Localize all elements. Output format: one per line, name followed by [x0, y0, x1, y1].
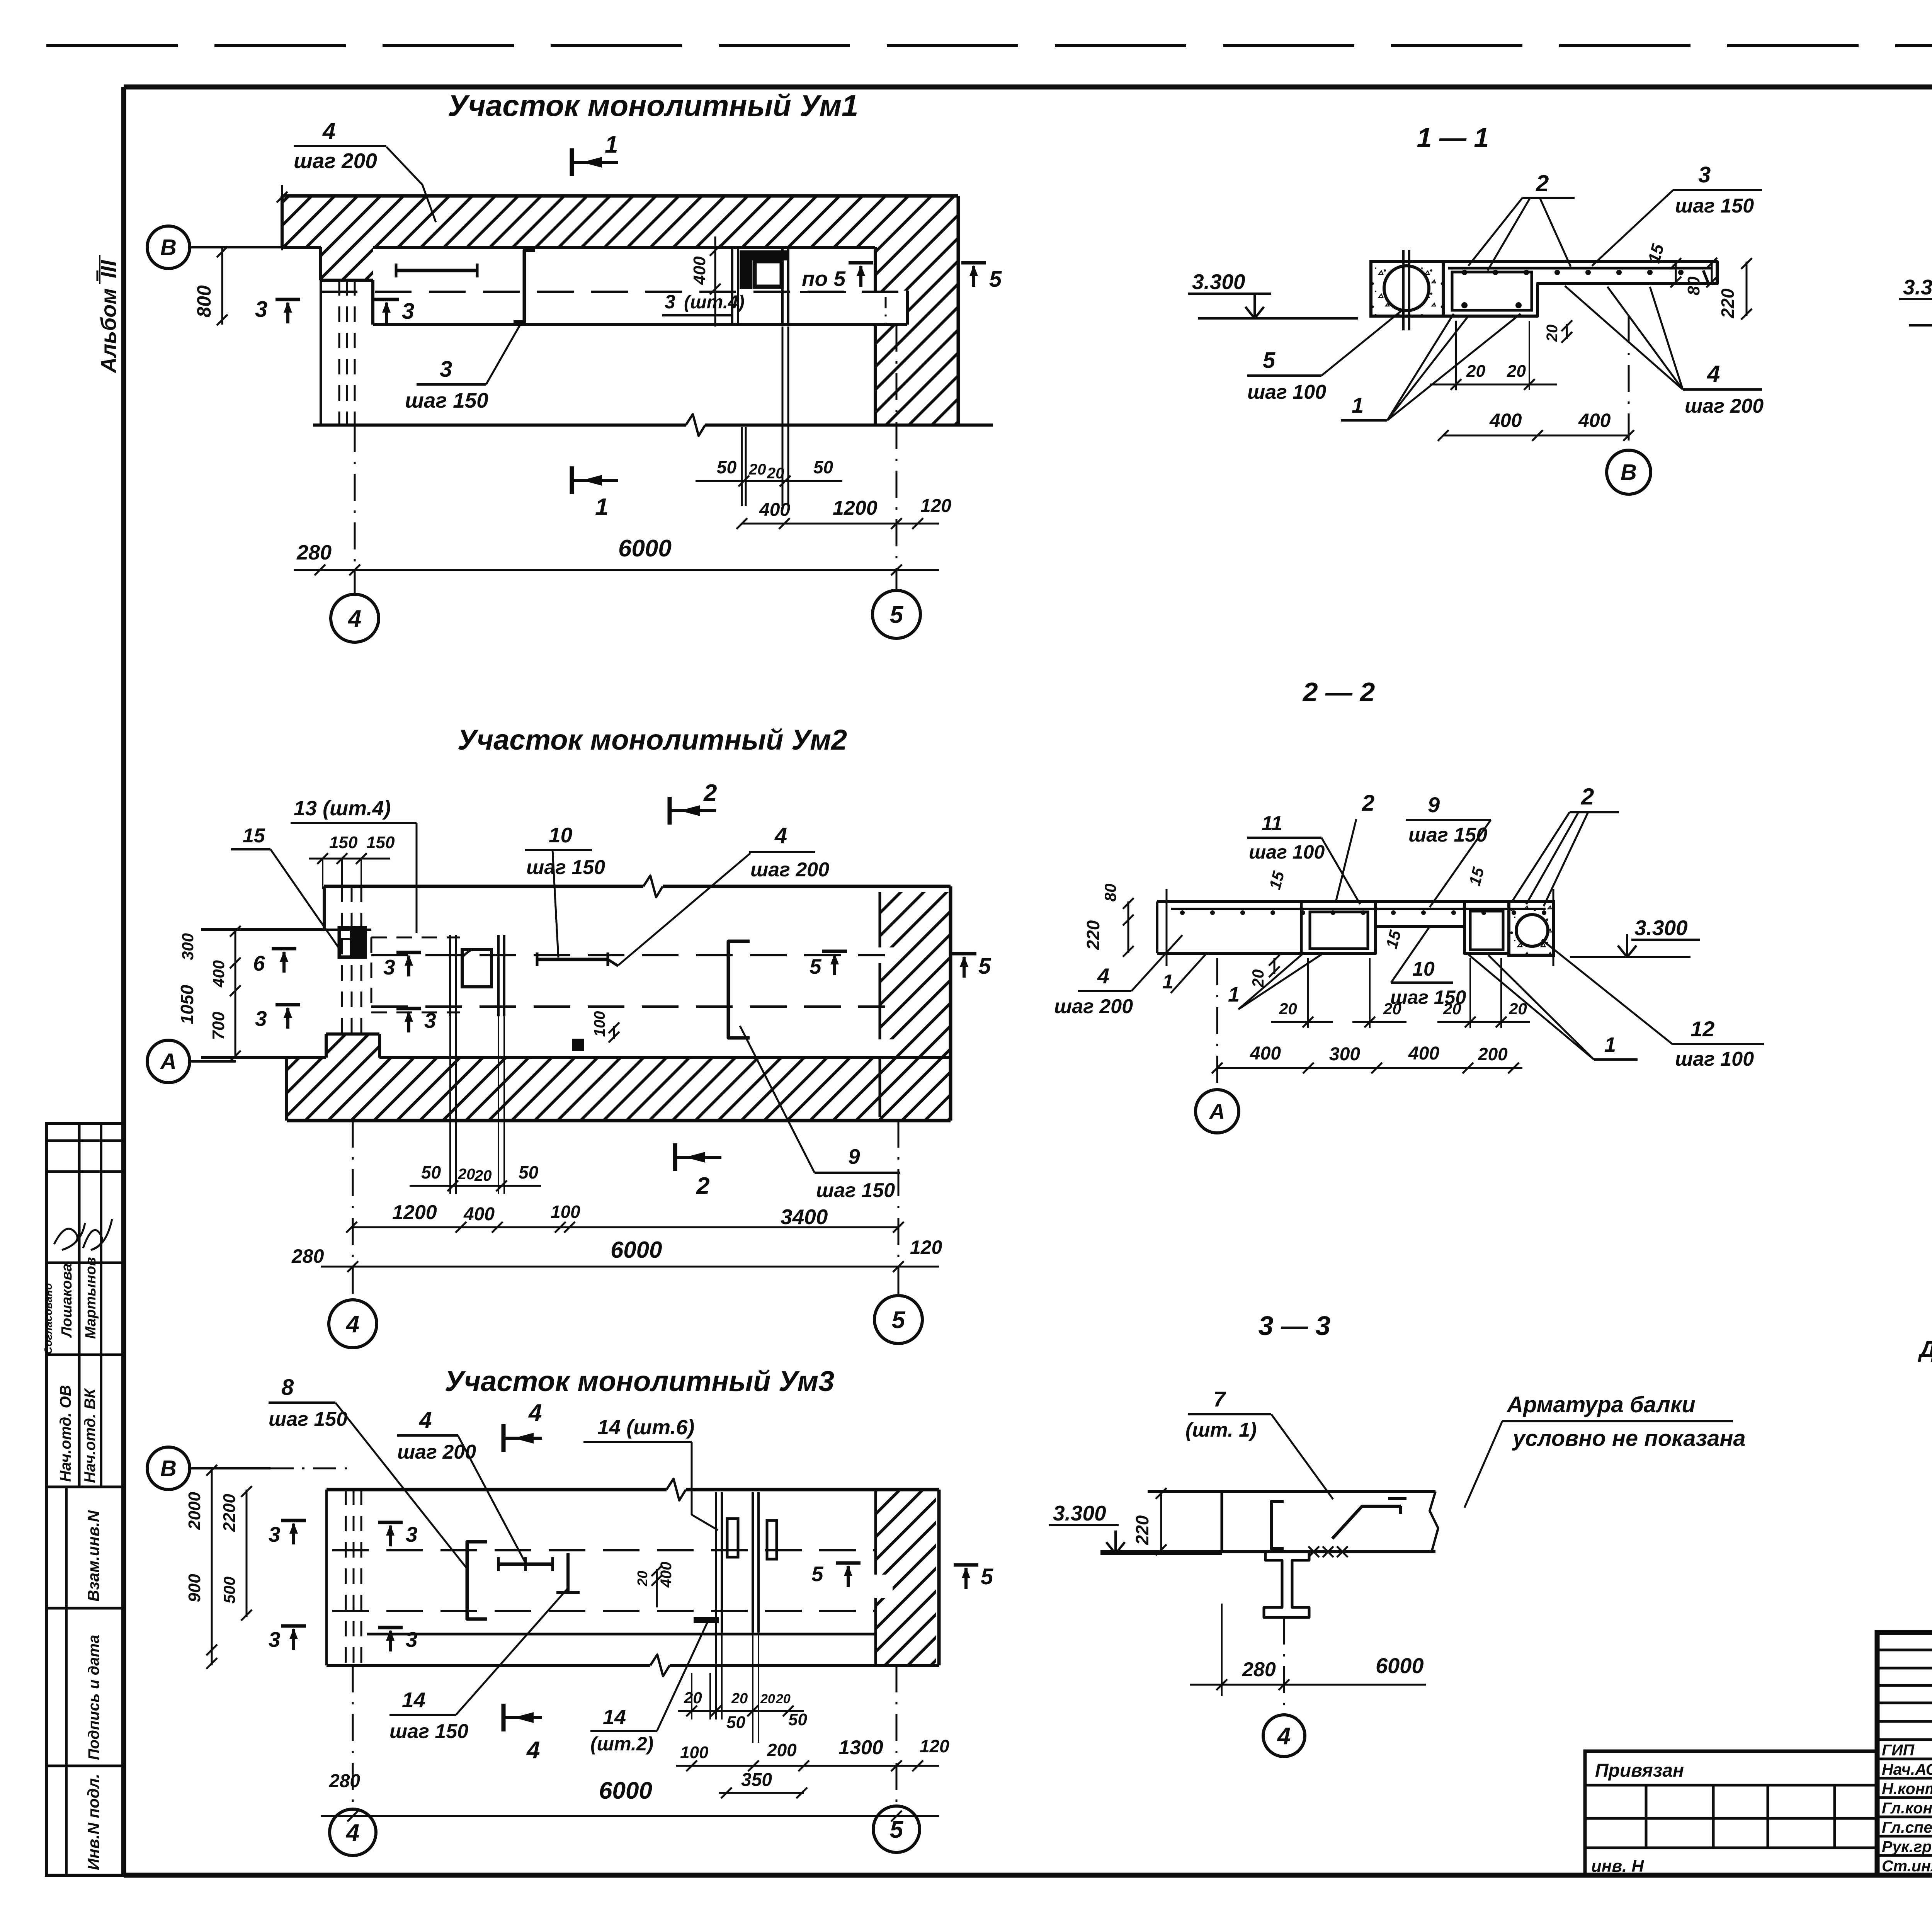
- svg-text:14: 14: [402, 1688, 425, 1712]
- svg-text:220: 220: [1132, 1515, 1152, 1545]
- svg-text:20: 20: [1509, 1000, 1527, 1018]
- svg-text:400: 400: [1408, 1043, 1439, 1064]
- svg-text:7: 7: [1213, 1387, 1226, 1411]
- svg-text:100: 100: [551, 1202, 580, 1222]
- svg-text:ГИП: ГИП: [1882, 1741, 1915, 1759]
- svg-text:2: 2: [1362, 791, 1374, 816]
- svg-text:5: 5: [890, 602, 904, 628]
- svg-text:20: 20: [634, 1571, 650, 1587]
- svg-text:Взам.инв.N: Взам.инв.N: [84, 1510, 102, 1602]
- svg-text:12: 12: [1690, 1017, 1714, 1041]
- svg-text:3.300: 3.300: [1903, 275, 1932, 299]
- svg-text:В: В: [1621, 460, 1637, 485]
- svg-text:шаг 100: шаг 100: [1247, 381, 1326, 403]
- svg-text:150: 150: [366, 833, 395, 852]
- svg-text:шаг 150: шаг 150: [816, 1179, 895, 1202]
- svg-text:3: 3: [255, 297, 267, 322]
- svg-text:400: 400: [1578, 410, 1611, 431]
- svg-text:10: 10: [549, 823, 573, 847]
- svg-text:4: 4: [526, 1737, 540, 1764]
- svg-text:280: 280: [329, 1771, 360, 1791]
- svg-text:4: 4: [1277, 1723, 1291, 1750]
- svg-text:6000: 6000: [599, 1777, 652, 1804]
- svg-text:А: А: [1209, 1099, 1225, 1124]
- svg-text:20: 20: [1544, 325, 1561, 342]
- svg-text:Гл.спец.: Гл.спец.: [1882, 1818, 1932, 1836]
- svg-text:4: 4: [345, 1311, 359, 1338]
- svg-text:700: 700: [209, 1012, 228, 1040]
- svg-text:3: 3: [269, 1522, 281, 1546]
- svg-text:50: 50: [519, 1162, 539, 1182]
- svg-text:9: 9: [848, 1145, 860, 1168]
- svg-text:5: 5: [981, 1564, 993, 1589]
- svg-text:11: 11: [1262, 812, 1282, 835]
- svg-text:4: 4: [419, 1408, 432, 1433]
- svg-text:120: 120: [920, 496, 951, 516]
- svg-text:20: 20: [1466, 362, 1485, 381]
- svg-text:Подпись и дата: Подпись и дата: [85, 1635, 102, 1760]
- svg-text:5: 5: [989, 267, 1002, 292]
- svg-text:4: 4: [1097, 964, 1109, 988]
- svg-text:400: 400: [463, 1204, 495, 1225]
- svg-text:1: 1: [1604, 1033, 1616, 1056]
- svg-text:20: 20: [474, 1167, 492, 1184]
- svg-text:6: 6: [253, 951, 265, 975]
- svg-text:120: 120: [910, 1236, 942, 1258]
- svg-text:50: 50: [726, 1713, 745, 1732]
- svg-text:2200: 2200: [220, 1494, 239, 1532]
- svg-text:3: 3: [402, 299, 414, 324]
- svg-text:1: 1: [1352, 393, 1364, 417]
- svg-text:20: 20: [1279, 1000, 1297, 1018]
- svg-text:1: 1: [1228, 983, 1240, 1006]
- svg-text:5: 5: [810, 954, 822, 978]
- svg-text:3: 3: [440, 357, 452, 382]
- svg-text:120: 120: [920, 1736, 949, 1756]
- svg-text:(шт.4): (шт.4): [684, 292, 745, 313]
- svg-text:Инв.N подл.: Инв.N подл.: [84, 1774, 102, 1870]
- svg-text:Участок монолитный Ум1: Участок монолитный Ум1: [448, 88, 859, 122]
- svg-text:4: 4: [528, 1400, 542, 1426]
- svg-text:1050: 1050: [177, 985, 197, 1024]
- svg-text:(шт.2): (шт.2): [590, 1733, 653, 1755]
- svg-text:3.300: 3.300: [1192, 270, 1245, 294]
- svg-text:280: 280: [296, 541, 332, 564]
- svg-text:80: 80: [1684, 276, 1703, 295]
- svg-text:3: 3: [406, 1522, 418, 1546]
- svg-text:800: 800: [193, 285, 215, 318]
- svg-text:Нач.отд. ВК: Нач.отд. ВК: [82, 1388, 99, 1483]
- svg-text:200: 200: [767, 1740, 797, 1760]
- svg-text:400: 400: [1250, 1043, 1281, 1064]
- svg-text:по 5: по 5: [802, 267, 846, 291]
- svg-text:220: 220: [1083, 920, 1103, 950]
- svg-text:6000: 6000: [611, 1237, 662, 1263]
- svg-text:20: 20: [457, 1166, 475, 1183]
- svg-text:14 (шт.6): 14 (шт.6): [597, 1416, 694, 1439]
- svg-text:400: 400: [658, 1562, 675, 1588]
- svg-text:шаг 100: шаг 100: [1675, 1048, 1754, 1070]
- svg-text:шаг 200: шаг 200: [1054, 995, 1133, 1018]
- svg-text:шаг 150: шаг 150: [405, 388, 488, 412]
- svg-text:2: 2: [703, 780, 717, 806]
- svg-text:3: 3: [665, 291, 675, 313]
- svg-text:50: 50: [717, 457, 737, 477]
- svg-text:20: 20: [776, 1692, 791, 1706]
- svg-text:400: 400: [209, 960, 228, 988]
- svg-text:20: 20: [1249, 969, 1267, 988]
- svg-text:50: 50: [421, 1162, 441, 1182]
- svg-text:13 (шт.4): 13 (шт.4): [294, 797, 391, 820]
- svg-text:шаг 100: шаг 100: [1249, 841, 1325, 863]
- svg-text:инв. Н: инв. Н: [1591, 1857, 1644, 1876]
- svg-text:шаг 150: шаг 150: [269, 1408, 347, 1430]
- svg-text:14: 14: [603, 1706, 626, 1729]
- svg-text:2 — 2: 2 — 2: [1302, 677, 1375, 707]
- svg-text:шаг 150: шаг 150: [1675, 195, 1754, 217]
- svg-text:5: 5: [890, 1816, 904, 1843]
- svg-text:Участок монолитный Ум2: Участок монолитный Ум2: [457, 724, 847, 756]
- svg-text:1: 1: [595, 494, 608, 520]
- svg-text:Рук.гр.: Рук.гр.: [1882, 1838, 1932, 1855]
- svg-text:3: 3: [1698, 162, 1711, 187]
- svg-text:Альбом: Альбом: [96, 288, 121, 374]
- svg-text:1300: 1300: [838, 1736, 883, 1759]
- svg-text:шаг 200: шаг 200: [750, 859, 829, 881]
- svg-text:20: 20: [767, 465, 784, 482]
- svg-text:400: 400: [690, 256, 709, 285]
- svg-text:3: 3: [383, 955, 395, 979]
- svg-text:5: 5: [978, 954, 991, 979]
- svg-text:300: 300: [1329, 1044, 1360, 1065]
- svg-text:2: 2: [1581, 784, 1594, 810]
- svg-text:300: 300: [179, 933, 197, 960]
- svg-text:1: 1: [1162, 971, 1173, 993]
- svg-text:5: 5: [892, 1307, 906, 1333]
- svg-text:350: 350: [741, 1770, 772, 1790]
- svg-text:(шт. 1): (шт. 1): [1185, 1419, 1257, 1441]
- svg-text:3 — 3: 3 — 3: [1259, 1311, 1331, 1341]
- svg-text:3.300: 3.300: [1053, 1501, 1106, 1525]
- svg-text:8: 8: [281, 1375, 294, 1400]
- svg-text:20: 20: [1443, 1000, 1461, 1018]
- svg-text:20: 20: [1383, 1000, 1401, 1018]
- svg-text:1: 1: [605, 131, 618, 158]
- svg-text:20: 20: [731, 1690, 748, 1707]
- svg-text:4: 4: [345, 1820, 359, 1846]
- svg-text:80: 80: [1101, 884, 1119, 902]
- svg-text:Данный лист смотреть совмест: Данный лист смотреть совместно с листом …: [1917, 1336, 1932, 1362]
- svg-text:6000: 6000: [1376, 1653, 1424, 1678]
- svg-text:В: В: [160, 1456, 177, 1481]
- svg-text:условно не показана: условно не показана: [1512, 1426, 1746, 1451]
- svg-text:50: 50: [813, 457, 833, 477]
- svg-text:4: 4: [774, 823, 787, 848]
- svg-text:Лошакова: Лошакова: [59, 1264, 75, 1338]
- svg-text:280: 280: [1242, 1658, 1276, 1681]
- svg-text:2: 2: [696, 1173, 709, 1199]
- svg-text:220: 220: [1718, 288, 1738, 318]
- svg-text:100: 100: [680, 1743, 709, 1762]
- svg-text:1 — 1: 1 — 1: [1417, 122, 1489, 153]
- svg-text:10: 10: [1412, 958, 1435, 980]
- svg-text:1200: 1200: [833, 497, 878, 519]
- svg-text:Ст.инж.: Ст.инж.: [1882, 1857, 1932, 1875]
- svg-text:Гл.конст.: Гл.конст.: [1882, 1799, 1932, 1817]
- svg-text:Мартынов: Мартынов: [83, 1257, 99, 1339]
- svg-text:280: 280: [291, 1245, 324, 1267]
- svg-text:15: 15: [243, 825, 265, 847]
- svg-text:Согласовано: Согласовано: [42, 1283, 54, 1354]
- svg-text:400: 400: [1489, 410, 1522, 431]
- svg-text:Нач.отд. ОВ: Нач.отд. ОВ: [57, 1385, 74, 1482]
- svg-text:5: 5: [1263, 348, 1276, 373]
- svg-text:3: 3: [255, 1007, 267, 1031]
- svg-text:Нач.АСО: Нач.АСО: [1882, 1760, 1932, 1778]
- svg-text:20: 20: [760, 1692, 775, 1706]
- svg-text:4: 4: [1707, 361, 1720, 387]
- svg-text:3: 3: [406, 1628, 418, 1651]
- svg-text:900: 900: [185, 1574, 204, 1602]
- svg-text:шаг 150: шаг 150: [526, 856, 605, 879]
- svg-text:100: 100: [591, 1011, 608, 1037]
- svg-text:20: 20: [684, 1689, 702, 1707]
- svg-text:400: 400: [759, 500, 790, 520]
- svg-text:шаг 200: шаг 200: [397, 1441, 476, 1463]
- svg-text:20: 20: [1507, 362, 1526, 381]
- svg-text:150: 150: [329, 833, 358, 852]
- svg-text:В: В: [160, 235, 177, 260]
- svg-text:500: 500: [220, 1577, 238, 1604]
- svg-text:А: А: [160, 1049, 177, 1074]
- svg-text:шаг 150: шаг 150: [389, 1720, 468, 1743]
- svg-text:Арматура балки: Арматура балки: [1506, 1392, 1696, 1417]
- svg-text:6000: 6000: [618, 535, 672, 562]
- svg-text:3400: 3400: [781, 1205, 828, 1229]
- svg-text:1200: 1200: [392, 1201, 437, 1224]
- svg-text:5: 5: [811, 1562, 824, 1586]
- svg-text:4: 4: [347, 605, 361, 632]
- svg-text:3: 3: [424, 1009, 436, 1032]
- svg-text:2000: 2000: [185, 1492, 204, 1530]
- svg-text:200: 200: [1478, 1044, 1508, 1064]
- svg-text:Участок монолитный Ум3: Участок монолитный Ум3: [445, 1365, 834, 1397]
- svg-text:шаг 200: шаг 200: [1685, 395, 1764, 417]
- svg-text:50: 50: [788, 1710, 807, 1729]
- svg-text:20: 20: [748, 461, 766, 478]
- svg-text:шаг 200: шаг 200: [294, 149, 377, 173]
- svg-text:3.300: 3.300: [1634, 916, 1688, 940]
- svg-text:2: 2: [1536, 170, 1549, 196]
- svg-text:4: 4: [322, 118, 335, 144]
- svg-text:9: 9: [1428, 793, 1440, 817]
- svg-text:3: 3: [269, 1628, 281, 1651]
- svg-text:Привязан: Привязан: [1595, 1760, 1684, 1781]
- svg-text:Н.контр.: Н.контр.: [1882, 1780, 1932, 1798]
